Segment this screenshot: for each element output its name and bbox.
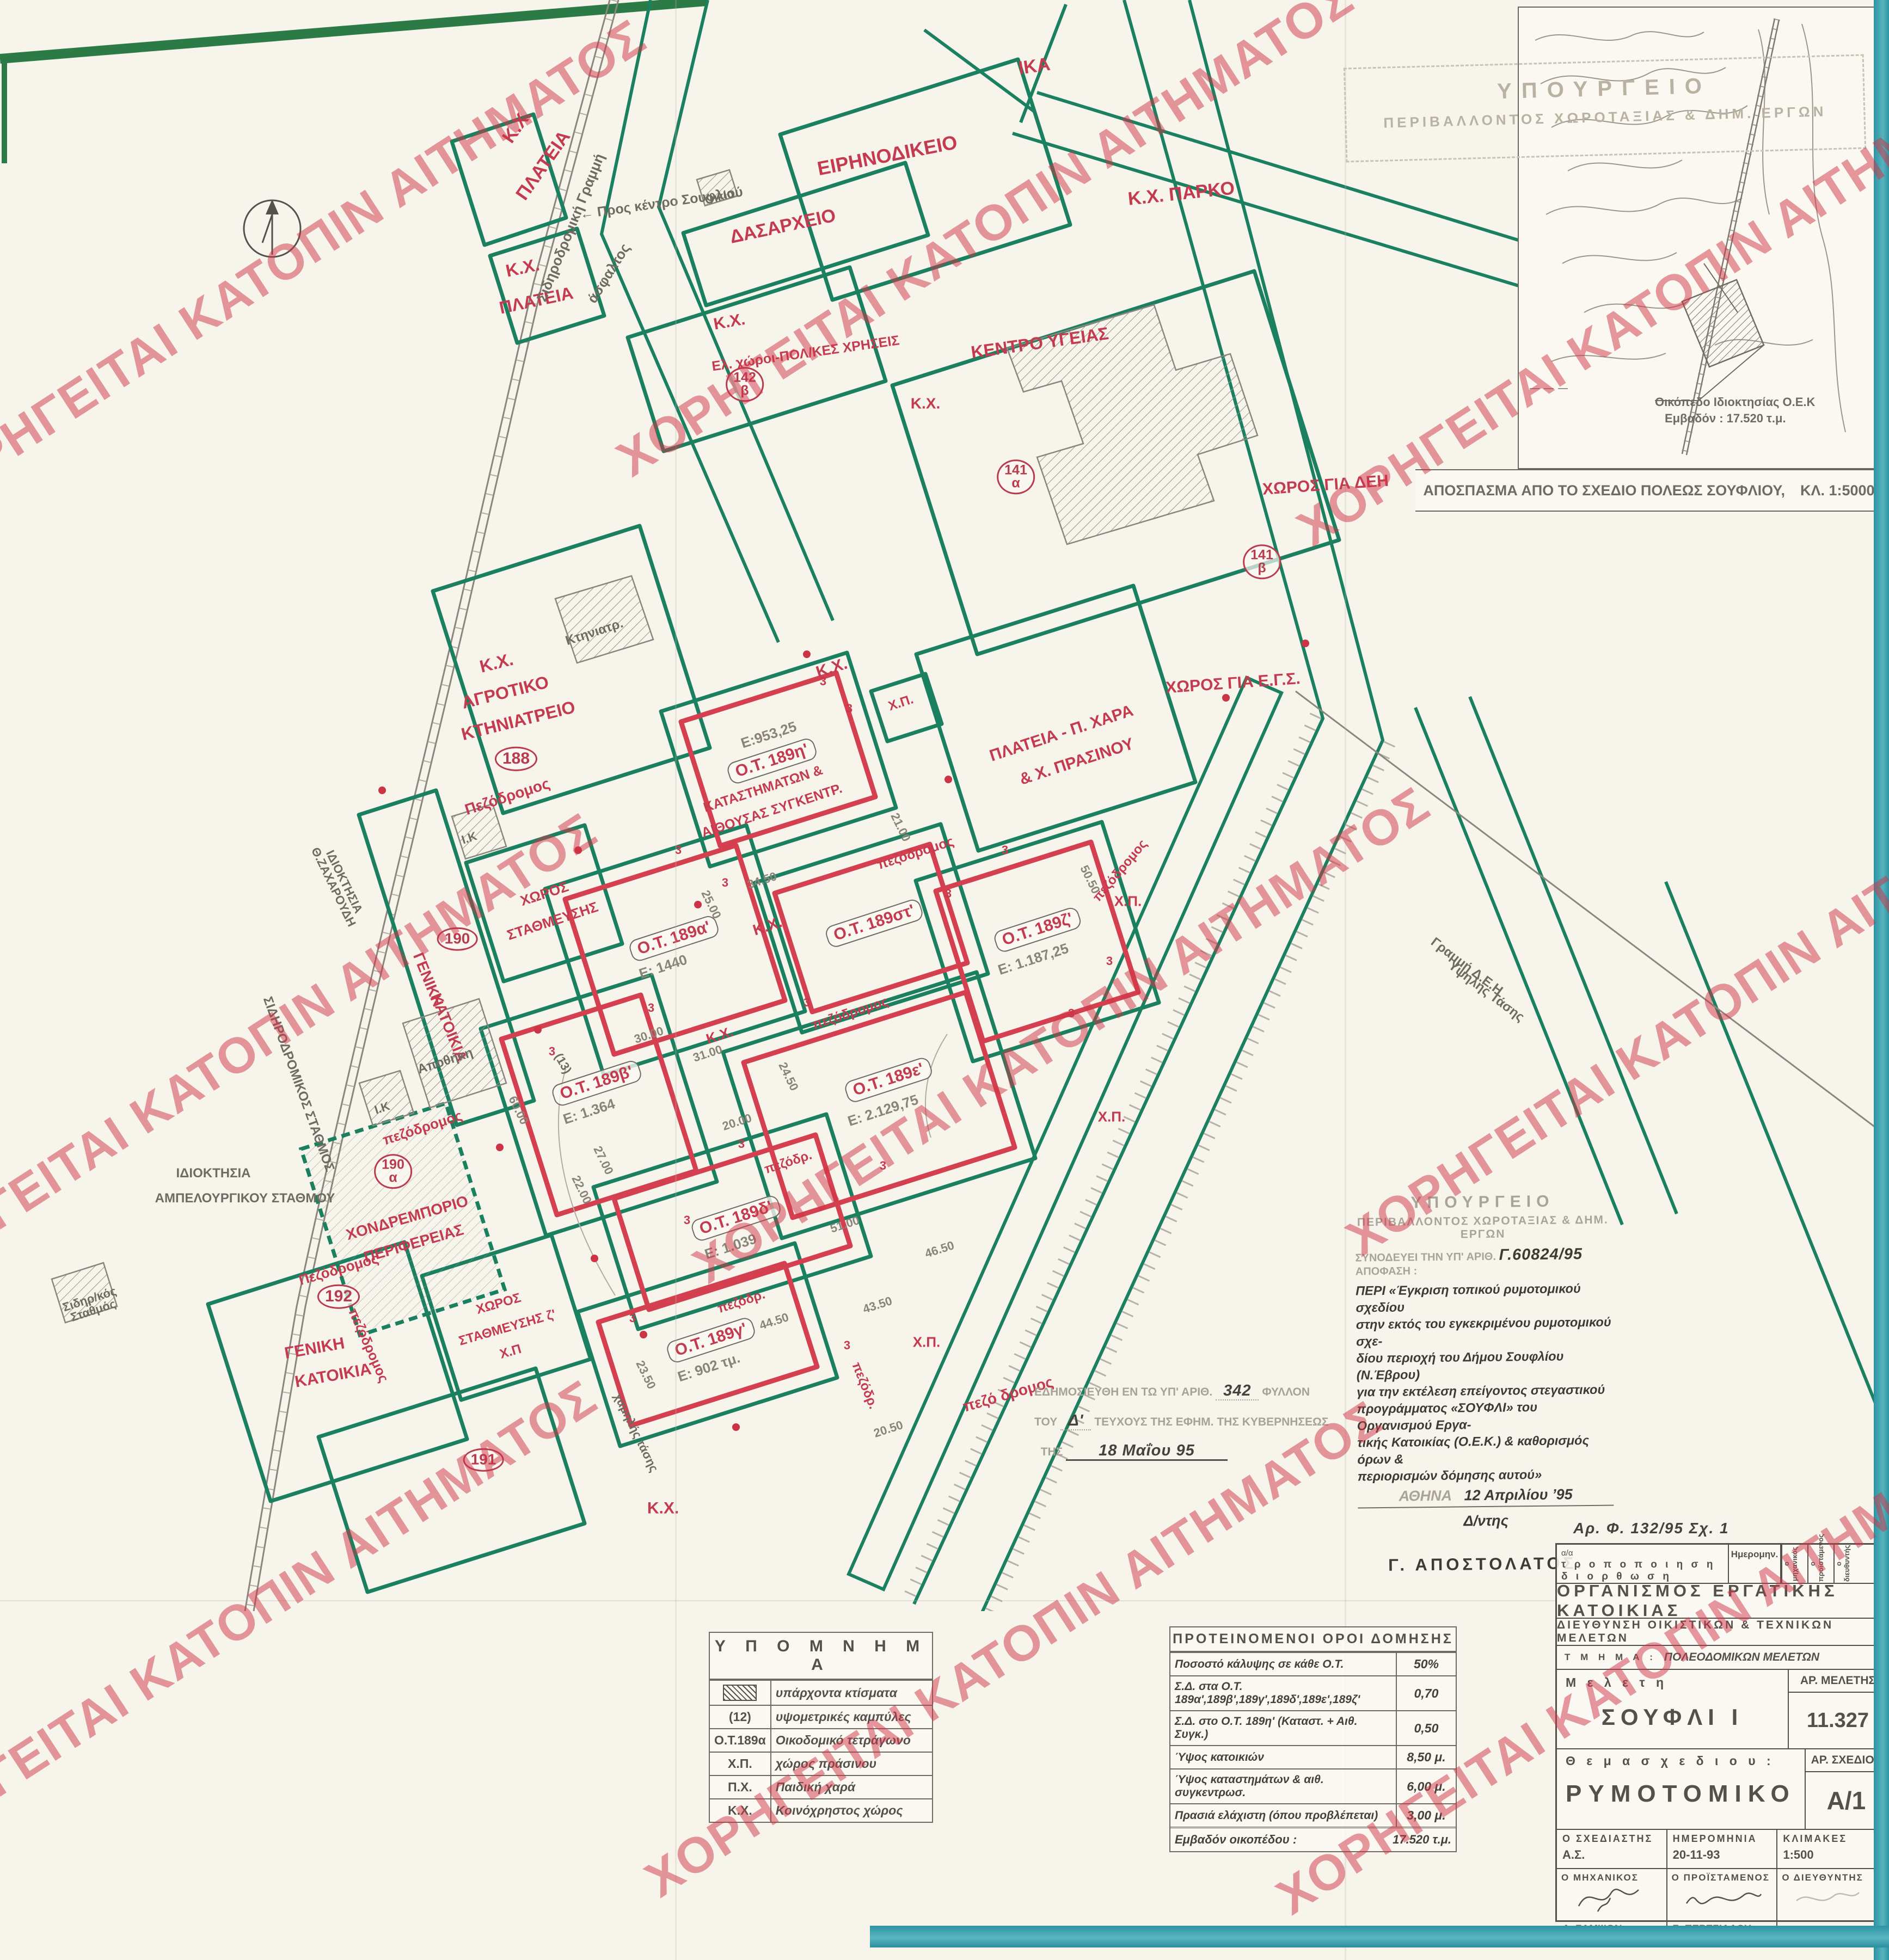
legend-symbol: Κ.Χ. [710, 1799, 771, 1822]
approval-date-line: ΑΘΗΝΑ 12 Απριλίου ’95 [1358, 1486, 1614, 1509]
map-label: Ι.Κ [373, 1100, 391, 1116]
approval-stamp: ΥΠΟΥΡΓΕΙΟ ΠΕΡΙΒΑΛΛΟΝΤΟΣ ΧΩΡΟΤΑΞΙΑΣ & ΔΗΜ… [1354, 1192, 1614, 1576]
revision-row: α/α τ ρ ο π ο π ο ι η σ η δ ι ο ρ θ ω σ … [1557, 1545, 1887, 1584]
map-label: 3 [722, 877, 728, 889]
revision-engineer-cell: ο μηχανικός [1781, 1545, 1807, 1583]
titleblock-annotation: Αρ. Φ. 132/95 Σχ. 1 [1573, 1520, 1729, 1537]
map-label: 23.50 [634, 1359, 658, 1391]
gazette-date: 18 Μαΐου 95 [1066, 1442, 1228, 1461]
paper-crease [0, 1600, 1555, 1601]
organization-name: ΟΡΓΑΝΙΣΜΟΣ ΕΡΓΑΤΙΚΗΣ ΚΑΤΟΙΚΙΑΣ [1557, 1584, 1887, 1619]
plot-area-value: 17.520 τ.μ. [1393, 1833, 1451, 1847]
map-label: πεζόδρομος [811, 994, 891, 1032]
ministry-name: ΥΠΟΥΡΓΕΙΟ [1346, 70, 1863, 108]
terms-row: Ύψος καταστημάτων & αιθ. συγκεντρωσ.6,00… [1170, 1769, 1456, 1804]
map-label: 3 [820, 675, 826, 687]
plot-area-label: Εμβαδόν οικοπέδου : [1175, 1833, 1297, 1847]
map-label: 30.00 [633, 1025, 665, 1046]
map-label: ΧΩΡΟΣ [475, 1292, 523, 1317]
map-label: Κ.Χ. [504, 256, 541, 280]
junction-dot [694, 901, 702, 908]
plan-sheet: Κ.Χ.ΠΛΑΤΕΙΑΚ.Χ.ΠΛΑΤΕΙΑΣιδηροδρομική Γραμ… [0, 0, 1889, 1960]
map-label: Κ.Χ. [478, 650, 515, 676]
map-label: ΚΕΝΤΡΟ ΥΓΕΙΑΣ [970, 324, 1110, 361]
study-name: ΣΟΥΦΛΙ Ι [1566, 1704, 1779, 1730]
map-label: ΣΤΑΘΜΕΥΣΗΣ ζ' [457, 1308, 557, 1348]
legend-symbol: (12) [710, 1705, 771, 1729]
title-block: α/α τ ρ ο π ο π ο ι η σ η δ ι ο ρ θ ω σ … [1555, 1543, 1888, 1922]
map-label: Υψηλής Τάσης [1446, 959, 1526, 1024]
map-label: ΠΛΑΤΕΙΑ [513, 127, 574, 204]
approval-place: ΑΘΗΝΑ [1399, 1488, 1452, 1504]
hatch-symbol-icon [723, 1685, 757, 1701]
junction-dot [496, 1144, 504, 1151]
map-label: 34.50 [746, 870, 778, 891]
map-label: πεζόδρ. [763, 1148, 813, 1176]
map-label: 3 [629, 1312, 636, 1324]
map-label: (13) [553, 1051, 574, 1076]
gazette-note: ΕΔΗΜΟΣΙΕΥΘΗ ΕΝ ΤΩ ΥΠ' ΑΡΙΘ. 342 ΦΥΛΛΟΝ Τ… [1034, 1376, 1361, 1466]
scales-cell: ΚΛΙΜΑΚΕΣ 1:500 [1777, 1830, 1887, 1868]
teal-edge-band-bottom [870, 1926, 1889, 1947]
block-id-label: Ο.Τ. 189στ' [824, 898, 925, 949]
inset-site-area: Εμβαδόν : 17.520 τ.μ. [1665, 411, 1786, 426]
signature-icon [1678, 1879, 1765, 1917]
map-label: 3 [1068, 1007, 1075, 1019]
junction-dot [591, 1255, 598, 1262]
map-label: Πεζόδρομος [463, 776, 551, 818]
map-label: Κ.Χ. [911, 396, 940, 412]
section-row: Τ Μ Η Μ Α : ΠΟΛΕΟΔΟΜΙΚΩΝ ΜΕΛΕΤΩΝ [1557, 1646, 1887, 1670]
north-arrow-icon [234, 191, 310, 267]
terms-row: Ποσοστό κάλυψης σε κάθε Ο.Τ.50% [1170, 1652, 1456, 1676]
map-label: πεζόδρ. [849, 1361, 880, 1411]
study-cell: Μ ε λ ε τ η ΣΟΥΦΛΙ Ι [1557, 1670, 1789, 1748]
legend-symbol [710, 1680, 771, 1705]
map-label: ΑΜΠΕΛΟΥΡΓΙΚΟΥ ΣΤΑΘΜΟΥ [155, 1192, 335, 1205]
term-value: 0,70 [1396, 1676, 1456, 1711]
map-label: 3 [844, 1340, 850, 1351]
subject-row: Θ ε μ α σ χ ε δ ι ο υ : ΡΥΜΟΤΟΜΙΚΟ ΑΡ. Σ… [1557, 1749, 1887, 1830]
approval-body-line: περιορισμών δόμησης αυτού» [1358, 1466, 1614, 1485]
study-number-cell: ΑΡ. ΜΕΛΕΤΗΣ 11.327 [1789, 1670, 1887, 1748]
map-label: ΧΩΡΟΣ ΓΙΑ Ε.Γ.Σ. [1165, 671, 1301, 697]
map-label: 46.50 [923, 1239, 955, 1260]
map-label: 60.00 [506, 1094, 530, 1126]
map-label: Κτηνιατρ. [564, 617, 625, 648]
terms-row: Σ.Δ. στο Ο.Τ. 189η' (Καταστ. + Αιθ. Συγκ… [1170, 1711, 1456, 1746]
legend-row: Χ.Π.χώρος πράσινου [710, 1752, 932, 1775]
block-number-badge: 141 α [997, 459, 1035, 494]
inset-site-note: Οικόπεδο Ιδιοκτησίας Ο.Ε.Κ [1655, 395, 1815, 409]
junction-dot [574, 846, 582, 854]
term-label: Σ.Δ. στο Ο.Τ. 189η' (Καταστ. + Αιθ. Συγκ… [1170, 1711, 1396, 1746]
map-label: 3 [804, 997, 810, 1009]
map-label: πεζόδρομος [381, 1108, 464, 1147]
terms-row: Σ.Δ. στα Ο.Τ. 189α',189β',189γ',189δ',18… [1170, 1676, 1456, 1711]
term-label: Ποσοστό κάλυψης σε κάθε Ο.Τ. [1170, 1652, 1396, 1676]
subject-label: Θ ε μ α σ χ ε δ ι ο υ : [1566, 1754, 1775, 1768]
block-number-badge: 190 [437, 927, 478, 951]
approval-body-line: ΠΕΡΙ «Έγκριση τοπικού ρυμοτομικού σχεδίο… [1356, 1280, 1612, 1317]
map-label: Κ.Χ. [499, 106, 535, 146]
approval-body-line: δίου περιοχή του Δήμου Σουφλίου (Ν.Έβρου… [1356, 1348, 1612, 1384]
map-label: 3 [880, 1160, 886, 1172]
building-terms-table: ΠΡΟΤΕΙΝΟΜΕΝΟΙ ΟΡΟΙ ΔΟΜΗΣΗΣ Ποσοστό κάλυψ… [1169, 1626, 1457, 1852]
gazette-line3: ΤΗΣ 18 Μαΐου 95 [1034, 1436, 1361, 1466]
block-id-label: Ο.Τ. 189ζ' [992, 906, 1083, 954]
map-label: 51.00 [829, 1214, 861, 1235]
subject-cell: Θ ε μ α σ χ ε δ ι ο υ : ΡΥΜΟΤΟΜΙΚΟ [1557, 1749, 1806, 1829]
inset-caption-scale: ΚΛ. 1:5000 [1800, 482, 1875, 499]
approval-ref-suffix: ΑΠΟΦΑΣΗ : [1356, 1265, 1418, 1277]
terms-title: ΠΡΟΤΕΙΝΟΜΕΝΟΙ ΟΡΟΙ ΔΟΜΗΣΗΣ [1170, 1627, 1456, 1652]
term-value: 50% [1396, 1652, 1456, 1676]
map-label: 3 [738, 1138, 745, 1150]
map-label: ΔΑΣΑΡΧΕΙΟ [728, 206, 838, 247]
map-label: Χ.Π [498, 1343, 523, 1362]
legend-description: Παιδική χαρά [771, 1775, 932, 1799]
legend-description: υπάρχοντα κτίσματα [771, 1680, 932, 1705]
map-label: Αποθήκη [416, 1046, 475, 1077]
map-label: χαμηλής τάσης [611, 1391, 660, 1474]
approval-ref-number: Γ.60824/95 [1499, 1245, 1583, 1264]
map-label: ΣΤΑΘΜΕΥΣΗΣ [505, 899, 600, 942]
map-label: Χ.Π. [913, 1335, 941, 1350]
paper-crease [675, 0, 677, 1960]
map-label: Ι.Κ [460, 830, 479, 846]
block-id-label: Ο.Τ. 189ε' [843, 1056, 934, 1104]
gazette-line1: ΕΔΗΜΟΣΙΕΥΘΗ ΕΝ ΤΩ ΥΠ' ΑΡΙΘ. 342 ΦΥΛΛΟΝ [1034, 1376, 1361, 1406]
signature-icon [1568, 1879, 1649, 1917]
map-label: ΧΩΡΟΣ ΓΙΑ ΔΕΗ [1262, 473, 1389, 499]
gazette-volume: Δ' [1060, 1412, 1091, 1430]
legend-row: υπάρχοντα κτίσματα [710, 1680, 932, 1705]
approval-body-text: ΠΕΡΙ «Έγκριση τοπικού ρυμοτομικού σχεδίο… [1356, 1280, 1614, 1485]
map-label: ΙΔΙΟΚΤΗΣΙΑ Θ.ΖΑΧΑΡΟΥΔΗ [309, 840, 369, 929]
block-number-badge: 192 [317, 1285, 360, 1309]
junction-dot [1302, 640, 1309, 647]
map-label: Κ.Χ. [751, 914, 784, 938]
approval-body-line: στην εκτός του εγκεκριμένου ρυμοτομικού … [1356, 1314, 1612, 1350]
legend-symbol: Χ.Π. [710, 1752, 771, 1775]
map-label: 3 [945, 888, 952, 900]
map-label: Χ.Π. [1114, 894, 1142, 909]
legend-row: Ο.Τ.189αΟικοδομικό τετράγωνο [710, 1729, 932, 1752]
gazette-issue-number: 342 [1216, 1382, 1259, 1400]
legend-description: χώρος πράσινου [771, 1752, 932, 1775]
map-label: ΓΕΝΙΚΗ [284, 1335, 346, 1362]
term-label: Πρασιά ελάχιστη (όπου προβλέπεται) [1170, 1804, 1396, 1827]
term-value: 3,00 μ. [1396, 1804, 1456, 1827]
map-label: Κ.Χ. [647, 1501, 679, 1517]
term-value: 6,00 μ. [1396, 1769, 1456, 1804]
map-label: 3 [1106, 955, 1113, 967]
approval-body-line: τικής Κατοικίας (Ο.Ε.Κ.) & καθορισμός όρ… [1357, 1432, 1614, 1469]
map-label: Χ.Π. [887, 693, 915, 714]
gazette-line2: ΤΟΥ Δ' ΤΕΥΧΟΥΣ ΤΗΣ ΕΦΗΜ. ΤΗΣ ΚΥΒΕΡΝΗΣΕΩΣ [1034, 1406, 1361, 1436]
ministry-stamp-faint: ΥΠΟΥΡΓΕΙΟ ΠΕΡΙΒΑΛΛΟΝΤΟΣ ΧΩΡΟΤΑΞΙΑΣ & ΔΗΜ… [1344, 54, 1866, 163]
legend-title: Υ Π Ο Μ Ν Η Μ Α [710, 1633, 932, 1680]
junction-dot [944, 776, 952, 783]
map-label: 3 [684, 1214, 690, 1226]
study-number-label: ΑΡ. ΜΕΛΕΤΗΣ [1789, 1670, 1887, 1693]
junction-dot [732, 1423, 740, 1431]
map-label: 50.50 [1078, 863, 1102, 895]
revision-date-cell: Ημερομην. [1729, 1545, 1781, 1583]
terms-row: Ύψος κατοικιών8,50 μ. [1170, 1746, 1456, 1769]
approval-body-line: προγράμματος «ΣΟΥΦΛΙ» του Οργανισμού Εργ… [1357, 1398, 1613, 1435]
map-label: 31.00 [691, 1043, 723, 1064]
map-label: 27.00 [591, 1144, 615, 1176]
map-label: Κ.Χ. [713, 311, 747, 333]
map-label: 43.50 [861, 1295, 893, 1316]
term-label: Ύψος κατοικιών [1170, 1746, 1396, 1769]
term-label: Ύψος καταστημάτων & αιθ. συγκεντρωσ. [1170, 1769, 1396, 1804]
legend-symbol: Ο.Τ.189α [710, 1729, 771, 1752]
map-label: ΣΙΔΗΡΟΔΡΟΜΙΚΟΣ ΣΤΑΘΜΟΣ [260, 995, 336, 1173]
map-label: 20.50 [872, 1419, 904, 1440]
junction-dot [803, 650, 811, 658]
approval-date: 12 Απριλίου ’95 [1464, 1486, 1572, 1504]
study-number-value: 11.327 [1789, 1693, 1887, 1748]
teal-edge-band-right [1874, 0, 1889, 1960]
signature-icon [1788, 1879, 1865, 1917]
legend-row: Π.Χ.Παιδική χαρά [710, 1775, 932, 1799]
terms-row: Πρασιά ελάχιστη (όπου προβλέπεται)3,00 μ… [1170, 1804, 1456, 1827]
map-label: 24.50 [776, 1060, 800, 1092]
approval-ministry: ΥΠΟΥΡΓΕΙΟ [1354, 1192, 1610, 1213]
legend-description: Κοινόχρηστος χώρος [771, 1799, 932, 1822]
designer-cell: Ο ΣΧΕΔΙΑΣΤΗΣ Α.Σ. [1557, 1830, 1667, 1868]
map-label: ΕΙΡΗΝΟΔΙΚΕΙΟ [815, 132, 959, 179]
junction-dot [378, 787, 386, 794]
term-value: 0,50 [1396, 1711, 1456, 1746]
legend-description: Οικοδομικό τετράγωνο [771, 1729, 932, 1752]
map-label: ΙΚΑ [1017, 55, 1052, 78]
map-label: 20.00 [721, 1112, 753, 1133]
legend-symbol: Π.Χ. [710, 1775, 771, 1799]
approval-body-line: για την εκτέλεση επείγοντος στεγαστικού [1357, 1381, 1612, 1401]
map-label: Σιδηρ/κός Σταθμός [61, 1285, 121, 1325]
section-value: ΠΟΛΕΟΔΟΜΙΚΩΝ ΜΕΛΕΤΩΝ [1664, 1651, 1819, 1664]
map-label: 3 [1002, 844, 1008, 856]
block-number-badge: 141 β [1243, 544, 1281, 579]
map-label: Πεζόδρομος [297, 1251, 380, 1288]
map-label: άσφαλτος [585, 241, 633, 305]
map-label: Χ.Π. [1098, 1110, 1126, 1125]
map-label: 3 [549, 1046, 555, 1058]
term-label: Σ.Δ. στα Ο.Τ. 189α',189β',189γ',189δ',18… [1170, 1676, 1396, 1711]
block-number-badge: 188 [495, 747, 537, 771]
junction-dot [640, 1331, 647, 1338]
revision-supervisor-cell: ο προϊστάμενος [1807, 1545, 1833, 1583]
map-label: 21.00 [888, 811, 912, 843]
approval-ref: ΣΥΝΟΔΕΥΕΙ ΤΗΝ ΥΠ' ΑΡΙΘ. Γ.60824/95 ΑΠΟΦΑ… [1355, 1245, 1611, 1279]
revision-type-cell: α/α τ ρ ο π ο π ο ι η σ η δ ι ο ρ θ ω σ … [1557, 1545, 1729, 1583]
map-label: 3 [648, 1002, 654, 1014]
map-label: ΧΩΡΟΣ [518, 879, 570, 908]
block-number-badge: 190 α [374, 1154, 412, 1189]
approval-ministry-dept: ΠΕΡΙΒΑΛΛΟΝΤΟΣ ΧΩΡΟΤΑΞΙΑΣ & ΔΗΜ. ΕΡΓΩΝ [1355, 1214, 1611, 1243]
map-label: Κ.Χ. ΠΑΡΚΟ [1127, 179, 1235, 208]
revision-director-cell: ο διευθυντής [1833, 1545, 1860, 1583]
term-value: 8,50 μ. [1396, 1746, 1456, 1769]
inset-caption: ΑΠΟΣΠΑΣΜΑ ΑΠΟ ΤΟ ΣΧΕΔΙΟ ΠΟΛΕΩΣ ΣΟΥΦΛΙΟΥ,… [1415, 469, 1882, 512]
junction-dot [534, 1026, 542, 1034]
study-row: Μ ε λ ε τ η ΣΟΥΦΛΙ Ι ΑΡ. ΜΕΛΕΤΗΣ 11.327 [1557, 1670, 1887, 1749]
legend-row: Κ.Χ.Κοινόχρηστος χώρος [710, 1799, 932, 1822]
date-cell: ΗΜΕΡΟΜΗΝΙΑ 20-11-93 [1667, 1830, 1778, 1868]
map-label: 3 [846, 703, 852, 715]
meta-row: Ο ΣΧΕΔΙΑΣΤΗΣ Α.Σ. ΗΜΕΡΟΜΗΝΙΑ 20-11-93 ΚΛ… [1557, 1830, 1887, 1869]
map-label: ΙΔΙΟΚΤΗΣΙΑ [176, 1167, 251, 1180]
oek-site-polygon [1682, 280, 1764, 367]
map-label: πεζόδρ. [716, 1288, 766, 1316]
map-label: 25.00 [699, 888, 723, 920]
drawing-subject: ΡΥΜΟΤΟΜΙΚΟ [1566, 1780, 1796, 1808]
terms-footer: Εμβαδόν οικοπέδου : 17.520 τ.μ. [1170, 1827, 1456, 1851]
inset-caption-text: ΑΠΟΣΠΑΣΜΑ ΑΠΟ ΤΟ ΣΧΕΔΙΟ ΠΟΛΕΩΣ ΣΟΥΦΛΙΟΥ, [1423, 482, 1785, 499]
approval-ref-prefix: ΣΥΝΟΔΕΥΕΙ ΤΗΝ ΥΠ' ΑΡΙΘ. [1355, 1251, 1496, 1264]
junction-dot [1222, 694, 1230, 702]
study-label: Μ ε λ ε τ η [1566, 1675, 1667, 1689]
map-label: ΚΑΤΟΙΚΙΑ [293, 1361, 372, 1391]
block-number-badge: 142 β [726, 367, 764, 402]
map-label: 22.00 [569, 1173, 593, 1206]
section-label: Τ Μ Η Μ Α : [1565, 1652, 1657, 1663]
map-label: 44.50 [758, 1311, 790, 1332]
legend-table: Υ Π Ο Μ Ν Η Μ Α υπάρχοντα κτίσματα(12)υψ… [709, 1632, 933, 1823]
directorate-name: ΔΙΕΥΘΥΝΣΗ ΟΙΚΙΣΤΙΚΩΝ & ΤΕΧΝΙΚΩΝ ΜΕΛΕΤΩΝ [1557, 1619, 1887, 1646]
ministry-dept: ΠΕΡΙΒΑΛΛΟΝΤΟΣ ΧΩΡΟΤΑΞΙΑΣ & ΔΗΜ. ΕΡΓΩΝ [1346, 102, 1863, 133]
legend-row: (12)υψομετρικές καμπύλες [710, 1705, 932, 1729]
block-number-badge: 191 [463, 1448, 504, 1472]
legend-description: υψομετρικές καμπύλες [771, 1705, 932, 1729]
map-label: πεζόδρομος [876, 834, 956, 872]
